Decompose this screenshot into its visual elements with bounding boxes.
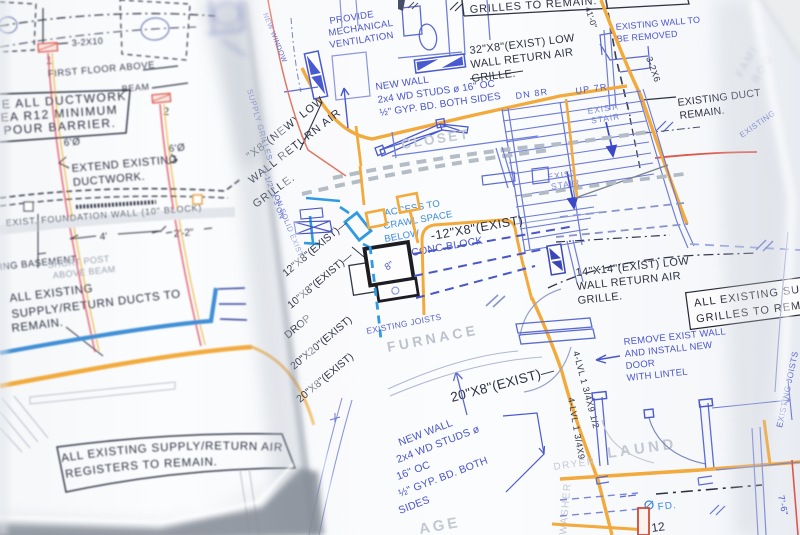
svg-text:4': 4': [99, 231, 107, 243]
svg-text:2'-2": 2'-2": [173, 227, 194, 240]
svg-text:12: 12: [650, 519, 665, 535]
svg-text:6'Ø: 6'Ø: [63, 137, 81, 149]
svg-text:FD.: FD.: [657, 500, 677, 513]
